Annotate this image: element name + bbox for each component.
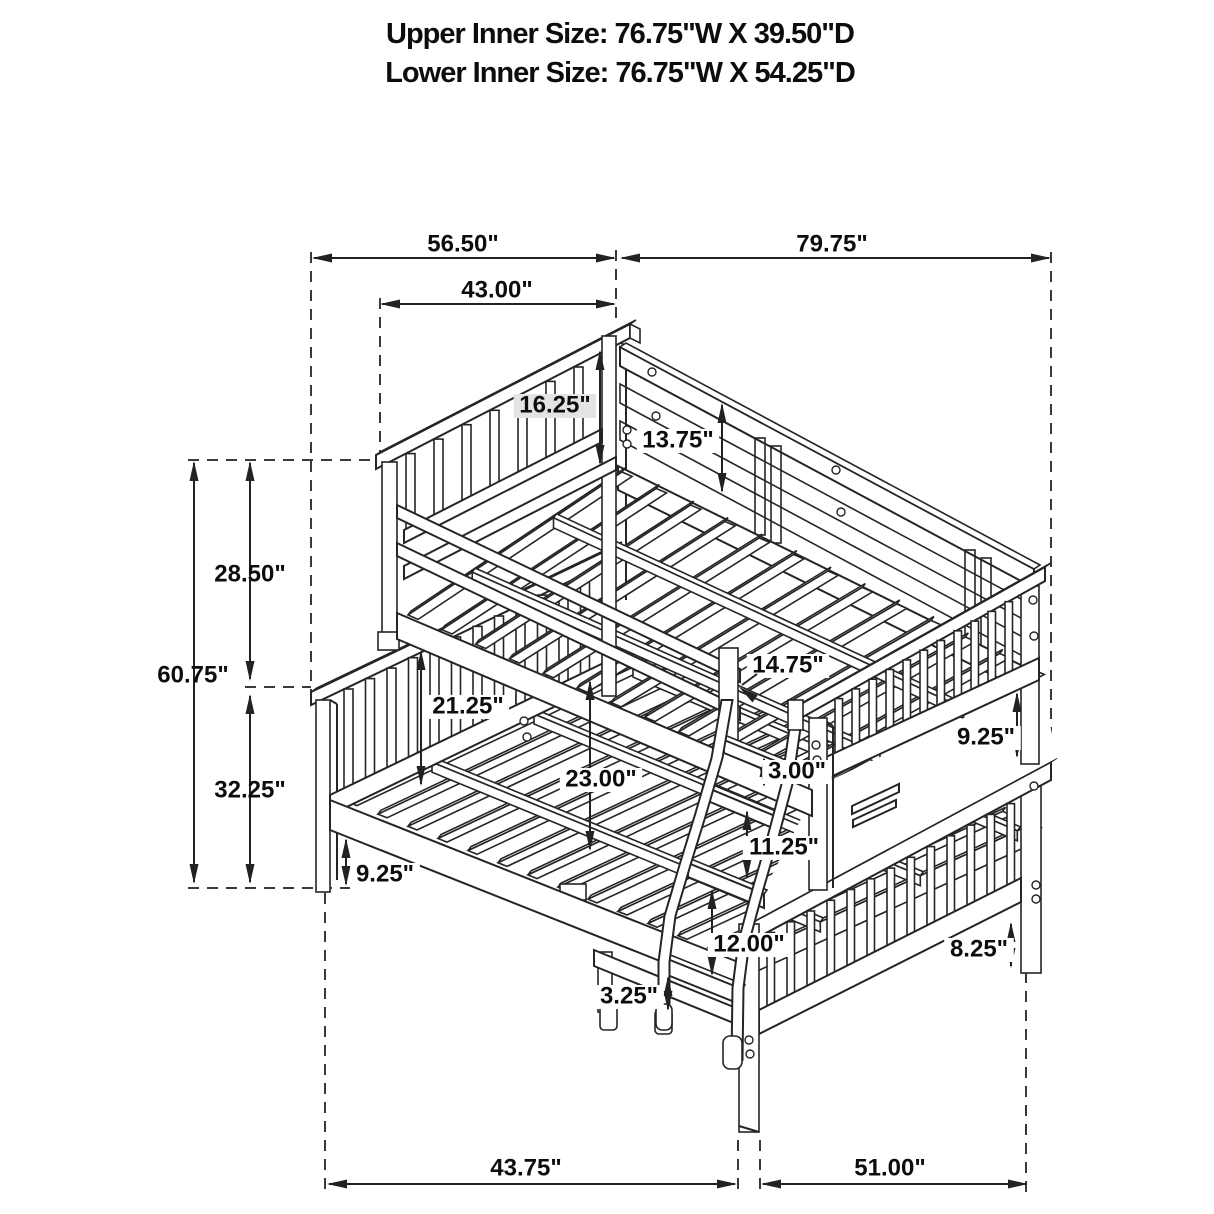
svg-text:16.25": 16.25" xyxy=(519,392,590,419)
svg-text:12.00": 12.00" xyxy=(713,931,784,958)
svg-text:28.50": 28.50" xyxy=(214,561,285,588)
svg-text:60.75": 60.75" xyxy=(157,662,228,689)
svg-text:9.25": 9.25" xyxy=(356,861,414,888)
svg-text:43.75": 43.75" xyxy=(490,1155,561,1182)
svg-text:3.00": 3.00" xyxy=(768,758,826,785)
svg-text:51.00": 51.00" xyxy=(854,1155,925,1182)
svg-text:32.25": 32.25" xyxy=(214,777,285,804)
svg-text:13.75": 13.75" xyxy=(642,427,713,454)
svg-text:Upper Inner Size: 76.75"W X 39: Upper Inner Size: 76.75"W X 39.50"D xyxy=(386,18,854,50)
svg-text:56.50": 56.50" xyxy=(427,231,498,258)
svg-text:Lower Inner Size: 76.75"W X 54: Lower Inner Size: 76.75"W X 54.25"D xyxy=(385,57,855,89)
svg-text:14.75": 14.75" xyxy=(752,652,823,679)
svg-text:23.00": 23.00" xyxy=(565,766,636,793)
svg-text:43.00": 43.00" xyxy=(461,277,532,304)
svg-text:21.25": 21.25" xyxy=(432,693,503,720)
svg-text:8.25": 8.25" xyxy=(950,936,1008,963)
svg-text:11.25": 11.25" xyxy=(749,834,819,861)
svg-text:9.25": 9.25" xyxy=(957,724,1015,751)
svg-text:79.75": 79.75" xyxy=(796,231,867,258)
svg-text:3.25": 3.25" xyxy=(600,983,658,1010)
